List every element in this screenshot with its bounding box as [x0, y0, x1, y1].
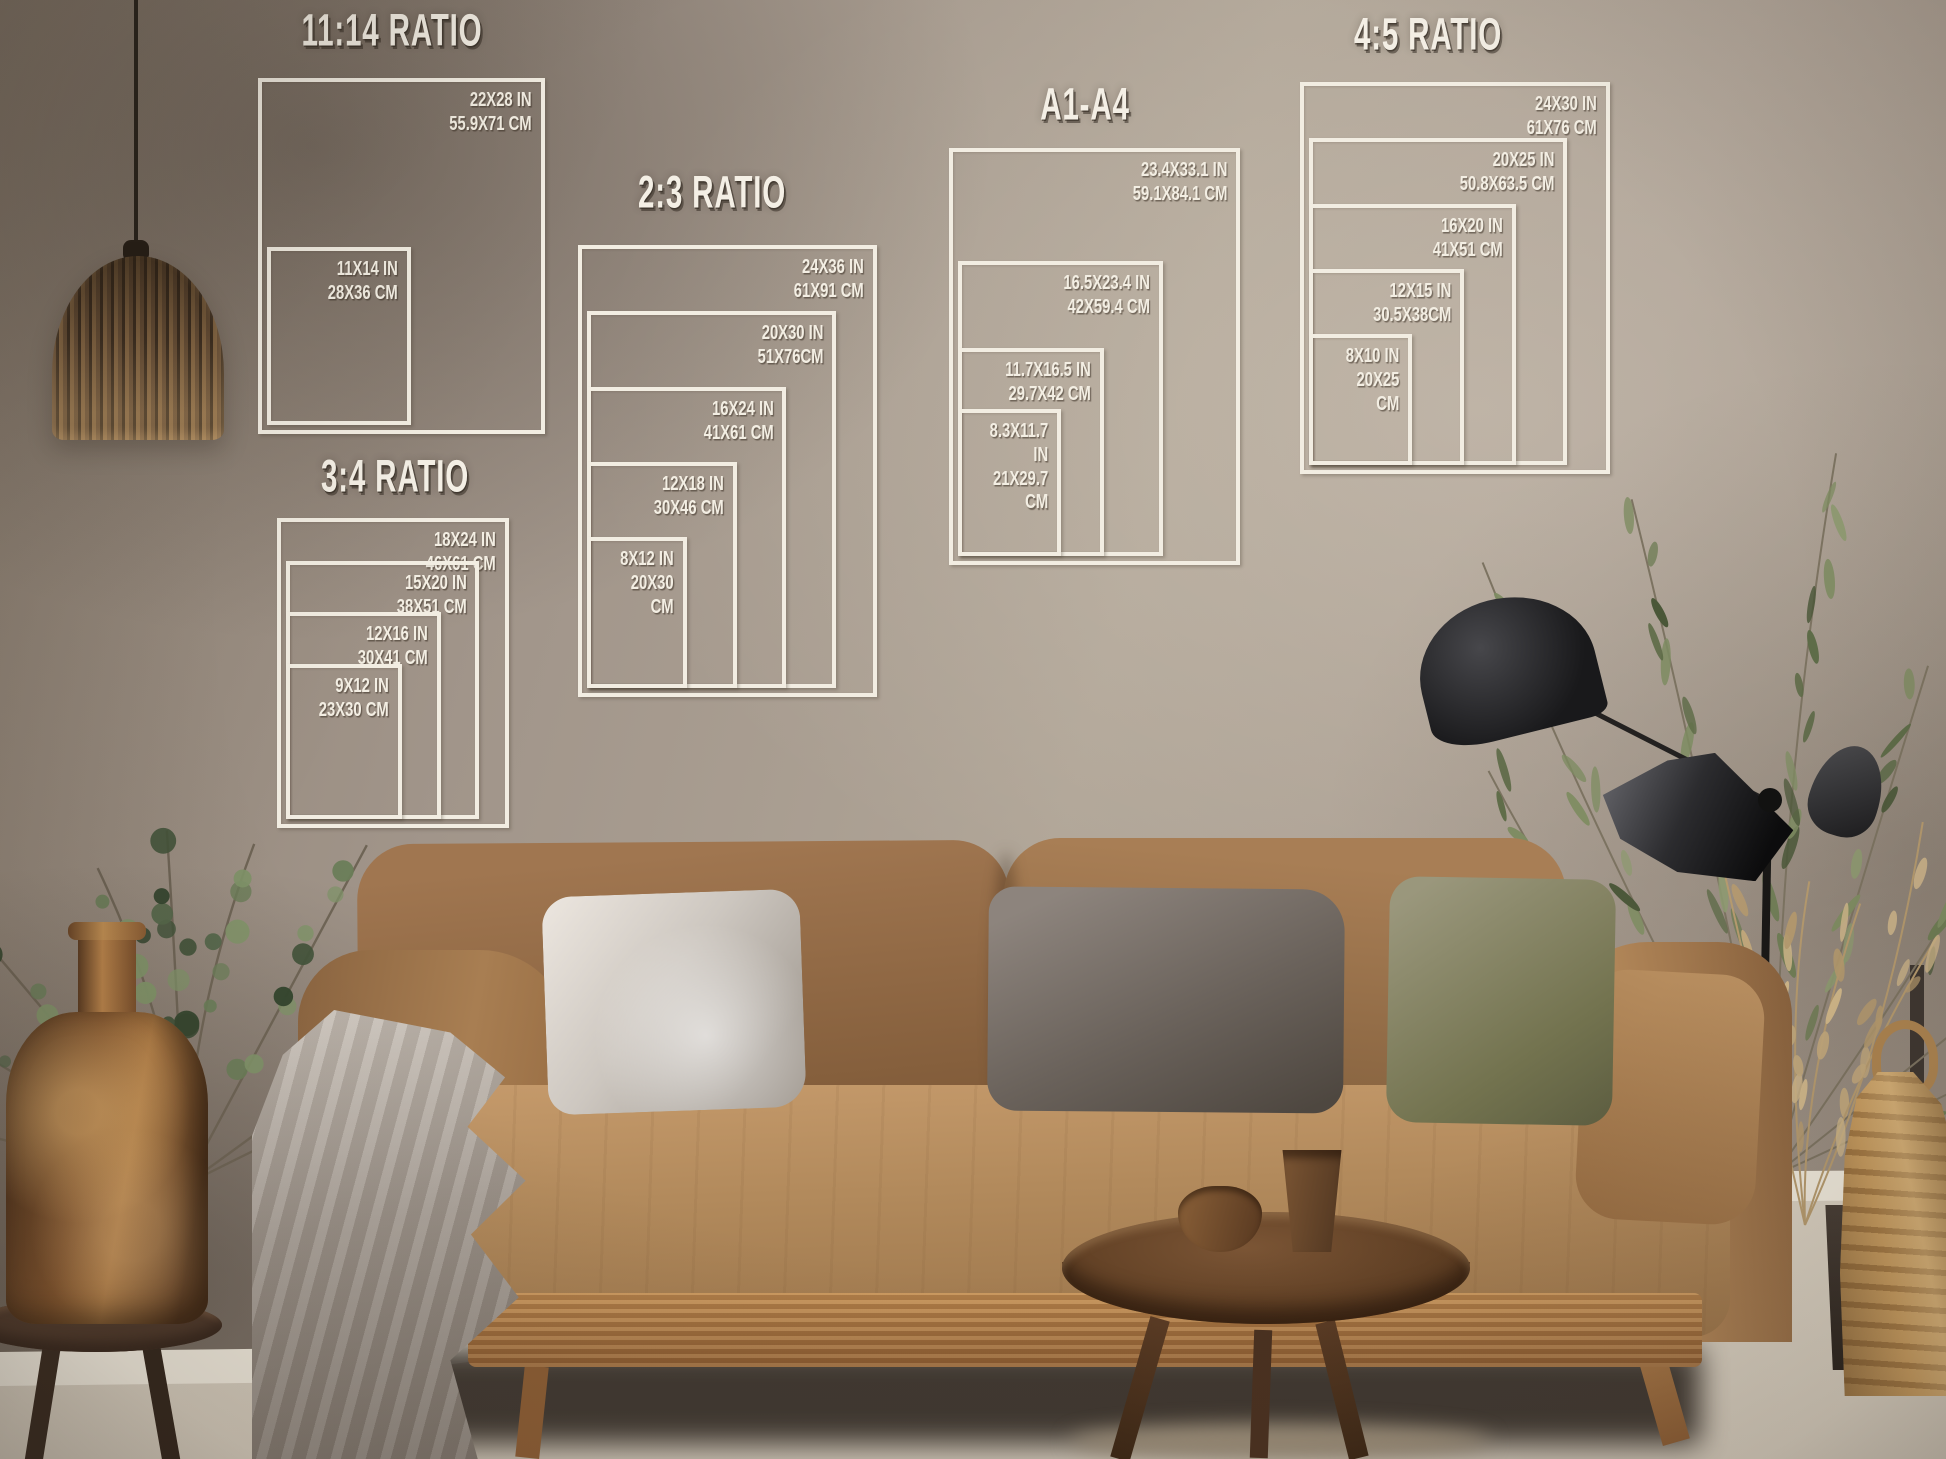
- size-rect-11x14-in: 11X14 IN 28X36 CM: [267, 247, 411, 425]
- size-guide-title: 3:4 RATIO: [321, 452, 469, 504]
- sofa-wood-rail: [468, 1293, 1702, 1367]
- size-label: 8X10 IN 20X25 CM: [1332, 345, 1399, 417]
- size-label: 16.5X23.4 IN 42X59.4 CM: [1064, 272, 1151, 320]
- size-label: 11.7X16.5 IN 29.7X42 CM: [1005, 359, 1091, 407]
- size-label: 8X12 IN 20X30 CM: [609, 548, 673, 620]
- size-guide-title: A1-A4: [1040, 80, 1130, 132]
- size-label: 20X30 IN 51X76CM: [757, 322, 823, 370]
- throw-pillow-silver: [541, 889, 806, 1116]
- size-label: 20X25 IN 50.8X63.5 CM: [1460, 149, 1555, 197]
- throw-pillow-olive: [1386, 876, 1616, 1126]
- size-guide-title: 11:14 RATIO: [302, 6, 483, 58]
- size-label: 24X30 IN 61X76 CM: [1527, 93, 1597, 141]
- coffee-table: [1062, 1212, 1470, 1324]
- size-label: 12X18 IN 30X46 CM: [653, 473, 723, 521]
- copper-vase-lip: [68, 922, 146, 940]
- size-label: 16X24 IN 41X61 CM: [703, 398, 773, 446]
- size-guide-title: 4:5 RATIO: [1354, 10, 1502, 62]
- living-room-photo: 11:14 RATIO22X28 IN 55.9X71 CM11X14 IN 2…: [0, 0, 1946, 1459]
- size-rect-8x12-in: 8X12 IN 20X30 CM: [587, 537, 687, 688]
- size-rect-8x10-in: 8X10 IN 20X25 CM: [1309, 334, 1412, 465]
- size-label: 24X36 IN 61X91 CM: [794, 256, 864, 304]
- size-label: 23.4X33.1 IN 59.1X84.1 CM: [1132, 159, 1227, 207]
- size-label: 11X14 IN 28X36 CM: [327, 258, 397, 306]
- floor-lamp-hub: [1758, 788, 1782, 812]
- pendant-cord: [134, 0, 138, 262]
- size-label: 22X28 IN 55.9X71 CM: [450, 89, 532, 137]
- size-guide-title: 2:3 RATIO: [638, 168, 786, 220]
- throw-pillow-gray: [987, 886, 1345, 1113]
- size-label: 8.3X11.7 IN 21X29.7 CM: [981, 420, 1048, 516]
- woven-basket: [1840, 1072, 1946, 1396]
- size-label: 12X15 IN 30.5X38CM: [1373, 280, 1451, 328]
- copper-vase: [6, 1012, 208, 1324]
- size-rect-8.3x11.7-in: 8.3X11.7 IN 21X29.7 CM: [958, 409, 1061, 556]
